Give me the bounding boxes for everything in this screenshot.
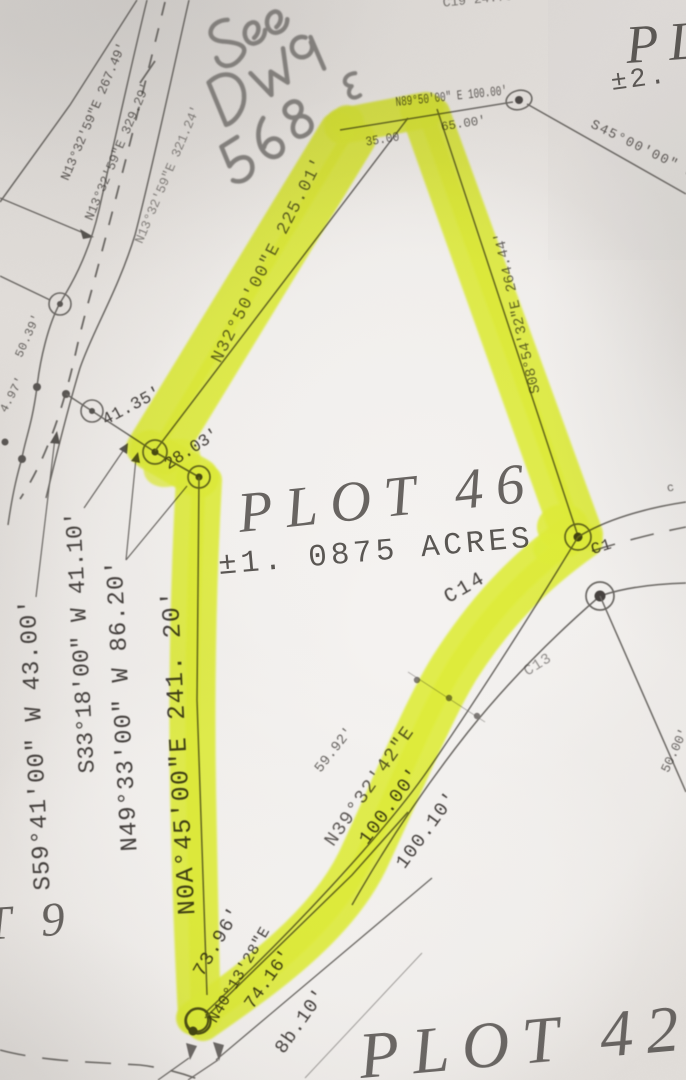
svg-text:T 9: T 9 — [0, 892, 75, 951]
